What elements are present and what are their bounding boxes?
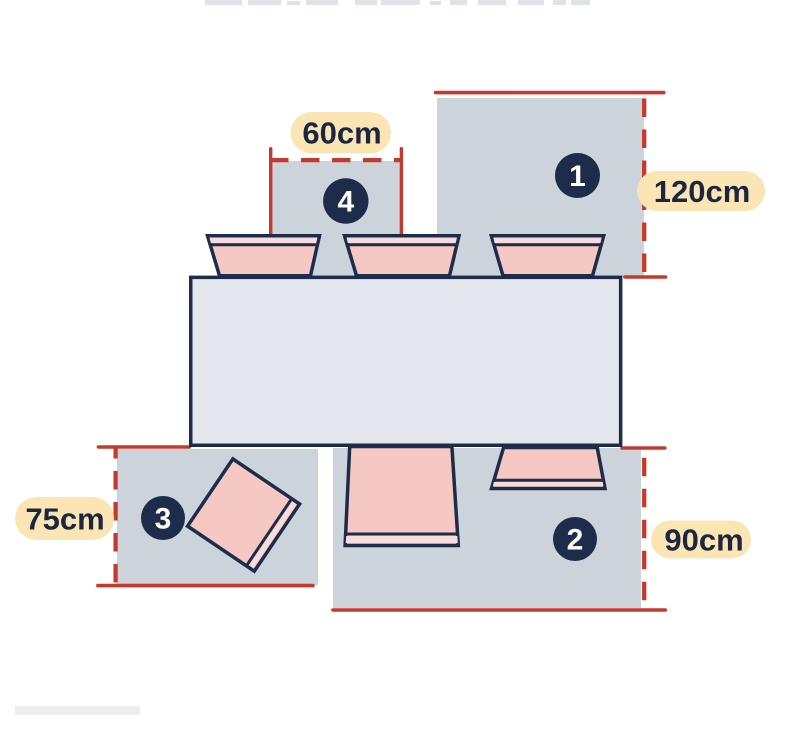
- svg-text:60cm: 60cm: [302, 116, 381, 151]
- svg-text:75cm: 75cm: [25, 502, 104, 537]
- svg-text:1: 1: [569, 160, 586, 193]
- svg-text:120cm: 120cm: [654, 174, 751, 209]
- svg-text:2: 2: [567, 524, 584, 557]
- svg-text:90cm: 90cm: [664, 523, 743, 558]
- svg-text:4: 4: [337, 186, 354, 219]
- svg-text:3: 3: [155, 503, 172, 536]
